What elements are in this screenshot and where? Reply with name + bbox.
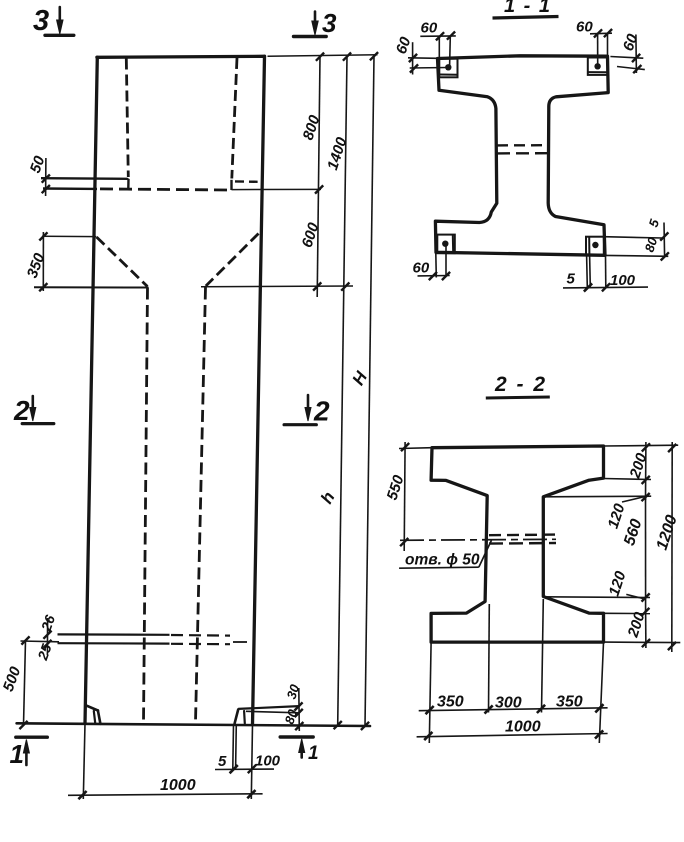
svg-text:800: 800	[300, 113, 324, 143]
svg-text:100: 100	[610, 272, 636, 289]
svg-text:60: 60	[421, 20, 438, 37]
svg-text:120: 120	[605, 501, 629, 531]
svg-text:1 - 1: 1 - 1	[504, 0, 552, 17]
svg-text:5: 5	[567, 271, 576, 288]
svg-text:120: 120	[606, 569, 630, 599]
svg-text:500: 500	[0, 664, 25, 694]
svg-text:300: 300	[495, 695, 522, 712]
svg-text:60: 60	[576, 19, 593, 36]
svg-text:1400: 1400	[324, 135, 351, 173]
svg-text:350: 350	[437, 694, 464, 711]
svg-text:1: 1	[10, 739, 24, 769]
svg-text:5: 5	[646, 217, 663, 229]
svg-text:1000: 1000	[160, 777, 196, 794]
svg-text:5: 5	[218, 753, 227, 770]
svg-text:60: 60	[620, 31, 642, 53]
svg-text:1000: 1000	[505, 719, 541, 736]
svg-text:25: 25	[34, 642, 55, 663]
svg-text:26: 26	[37, 613, 58, 634]
svg-text:560: 560	[621, 517, 645, 548]
svg-text:3: 3	[33, 5, 49, 37]
svg-text:60: 60	[393, 34, 415, 56]
svg-text:3: 3	[322, 8, 337, 38]
svg-text:отв. ϕ 50: отв. ϕ 50	[405, 552, 480, 569]
svg-text:H: H	[349, 368, 372, 389]
svg-text:2: 2	[313, 396, 330, 427]
svg-text:h: h	[317, 489, 339, 507]
svg-text:80: 80	[282, 707, 301, 726]
svg-text:60: 60	[413, 260, 430, 277]
svg-text:100: 100	[255, 753, 281, 770]
svg-text:1: 1	[308, 743, 319, 764]
svg-text:2: 2	[13, 395, 30, 426]
svg-text:2 - 2: 2 - 2	[494, 373, 547, 396]
svg-text:1200: 1200	[654, 513, 681, 552]
svg-text:350: 350	[24, 250, 49, 280]
svg-text:600: 600	[299, 220, 323, 250]
svg-text:200: 200	[626, 451, 650, 482]
svg-text:350: 350	[556, 694, 583, 711]
